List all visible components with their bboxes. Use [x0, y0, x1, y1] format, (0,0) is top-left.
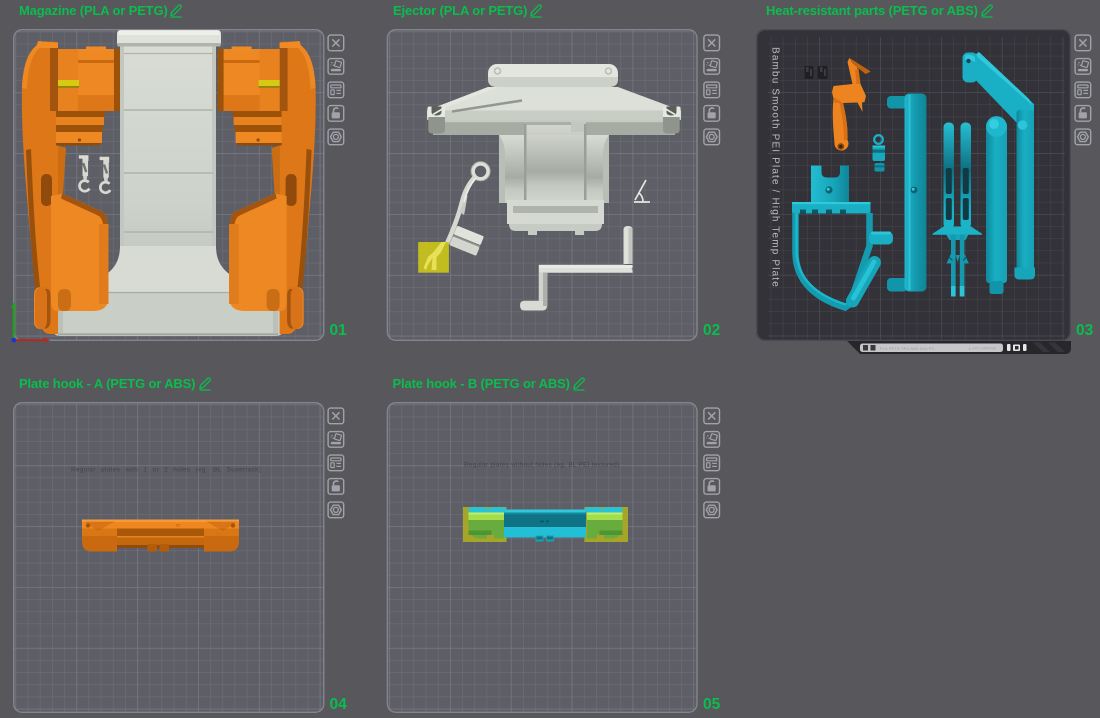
svg-text:02: 02	[176, 523, 181, 528]
svg-text:PLA PETG TPU ABS ASA PC: PLA PETG TPU ABS ASA PC	[880, 347, 935, 351]
svg-text:Plate hook - A (PETG or ABS): Plate hook - A (PETG or ABS)	[19, 376, 195, 391]
svg-text:Regular plates with 1 or 2 hol: Regular plates with 1 or 2 holes (eg. BL…	[71, 467, 261, 474]
svg-text:02: 02	[703, 322, 720, 339]
svg-text:01: 01	[330, 322, 348, 339]
svg-text:Plate hook - B (PETG or ABS): Plate hook - B (PETG or ABS)	[393, 376, 570, 391]
svg-text:05: 05	[703, 696, 721, 713]
svg-text:04: 04	[330, 696, 348, 713]
svg-text:Bambu Smooth PEI Plate / High: Bambu Smooth PEI Plate / High Temp Plate	[770, 47, 781, 288]
svg-text:Regular plates without holes (: Regular plates without holes (eg. BL PEI…	[464, 462, 619, 469]
svg-text:Ejector (PLA or PETG): Ejector (PLA or PETG)	[393, 3, 527, 18]
svg-text:03: 03	[1076, 322, 1094, 339]
svg-text:▲ HOT SURFACE: ▲ HOT SURFACE	[968, 347, 997, 351]
svg-text:Heat-resistant parts (PETG or: Heat-resistant parts (PETG or ABS)	[766, 3, 978, 18]
svg-text:Magazine (PLA or PETG): Magazine (PLA or PETG)	[19, 3, 168, 18]
